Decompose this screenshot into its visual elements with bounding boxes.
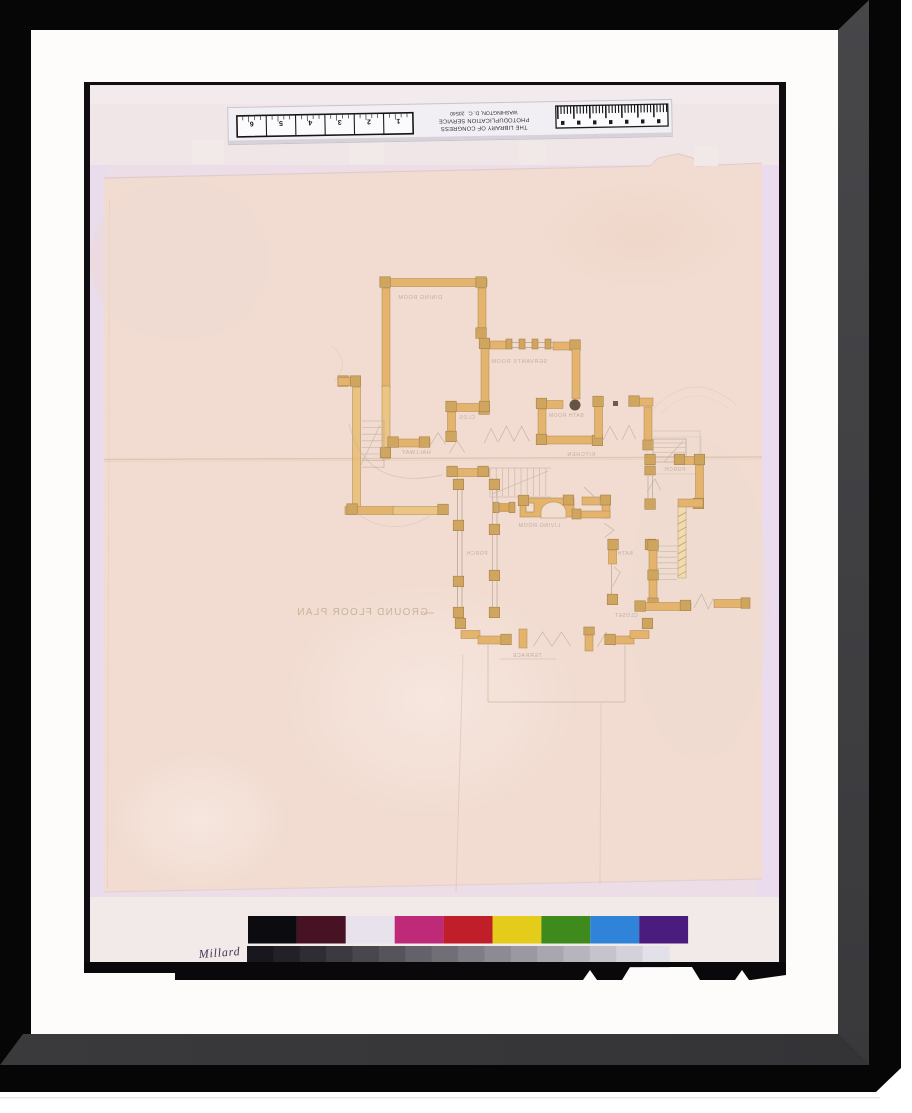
svg-text:3: 3 xyxy=(338,118,342,125)
svg-text:BATH: BATH xyxy=(617,551,632,557)
svg-text:TERRACE: TERRACE xyxy=(512,653,542,659)
svg-text:CLOSET: CLOSET xyxy=(614,613,638,619)
svg-text:GROUND FLOOR PLAN: GROUND FLOOR PLAN xyxy=(296,607,428,618)
svg-text:KITCHEN: KITCHEN xyxy=(567,452,595,458)
svg-text:4: 4 xyxy=(308,119,312,126)
svg-text:HALLWAY: HALLWAY xyxy=(401,450,430,456)
svg-text:1: 1 xyxy=(396,117,400,124)
svg-text:SERVANTS ROOM: SERVANTS ROOM xyxy=(491,359,547,365)
svg-text:Millard: Millard xyxy=(197,944,241,961)
svg-text:LIVING ROOM: LIVING ROOM xyxy=(518,523,560,529)
svg-text:6: 6 xyxy=(250,120,254,127)
svg-text:BATH ROOM: BATH ROOM xyxy=(548,413,583,419)
svg-text:WASHINGTON, D. C. 20540: WASHINGTON, D. C. 20540 xyxy=(450,109,518,116)
svg-text:DINING ROOM: DINING ROOM xyxy=(398,295,443,301)
svg-text:CLOS.: CLOS. xyxy=(457,415,475,421)
svg-text:PORCH: PORCH xyxy=(664,467,685,473)
svg-text:PORCH: PORCH xyxy=(466,551,487,557)
svg-text:2: 2 xyxy=(367,117,371,124)
svg-text:5: 5 xyxy=(279,119,283,126)
